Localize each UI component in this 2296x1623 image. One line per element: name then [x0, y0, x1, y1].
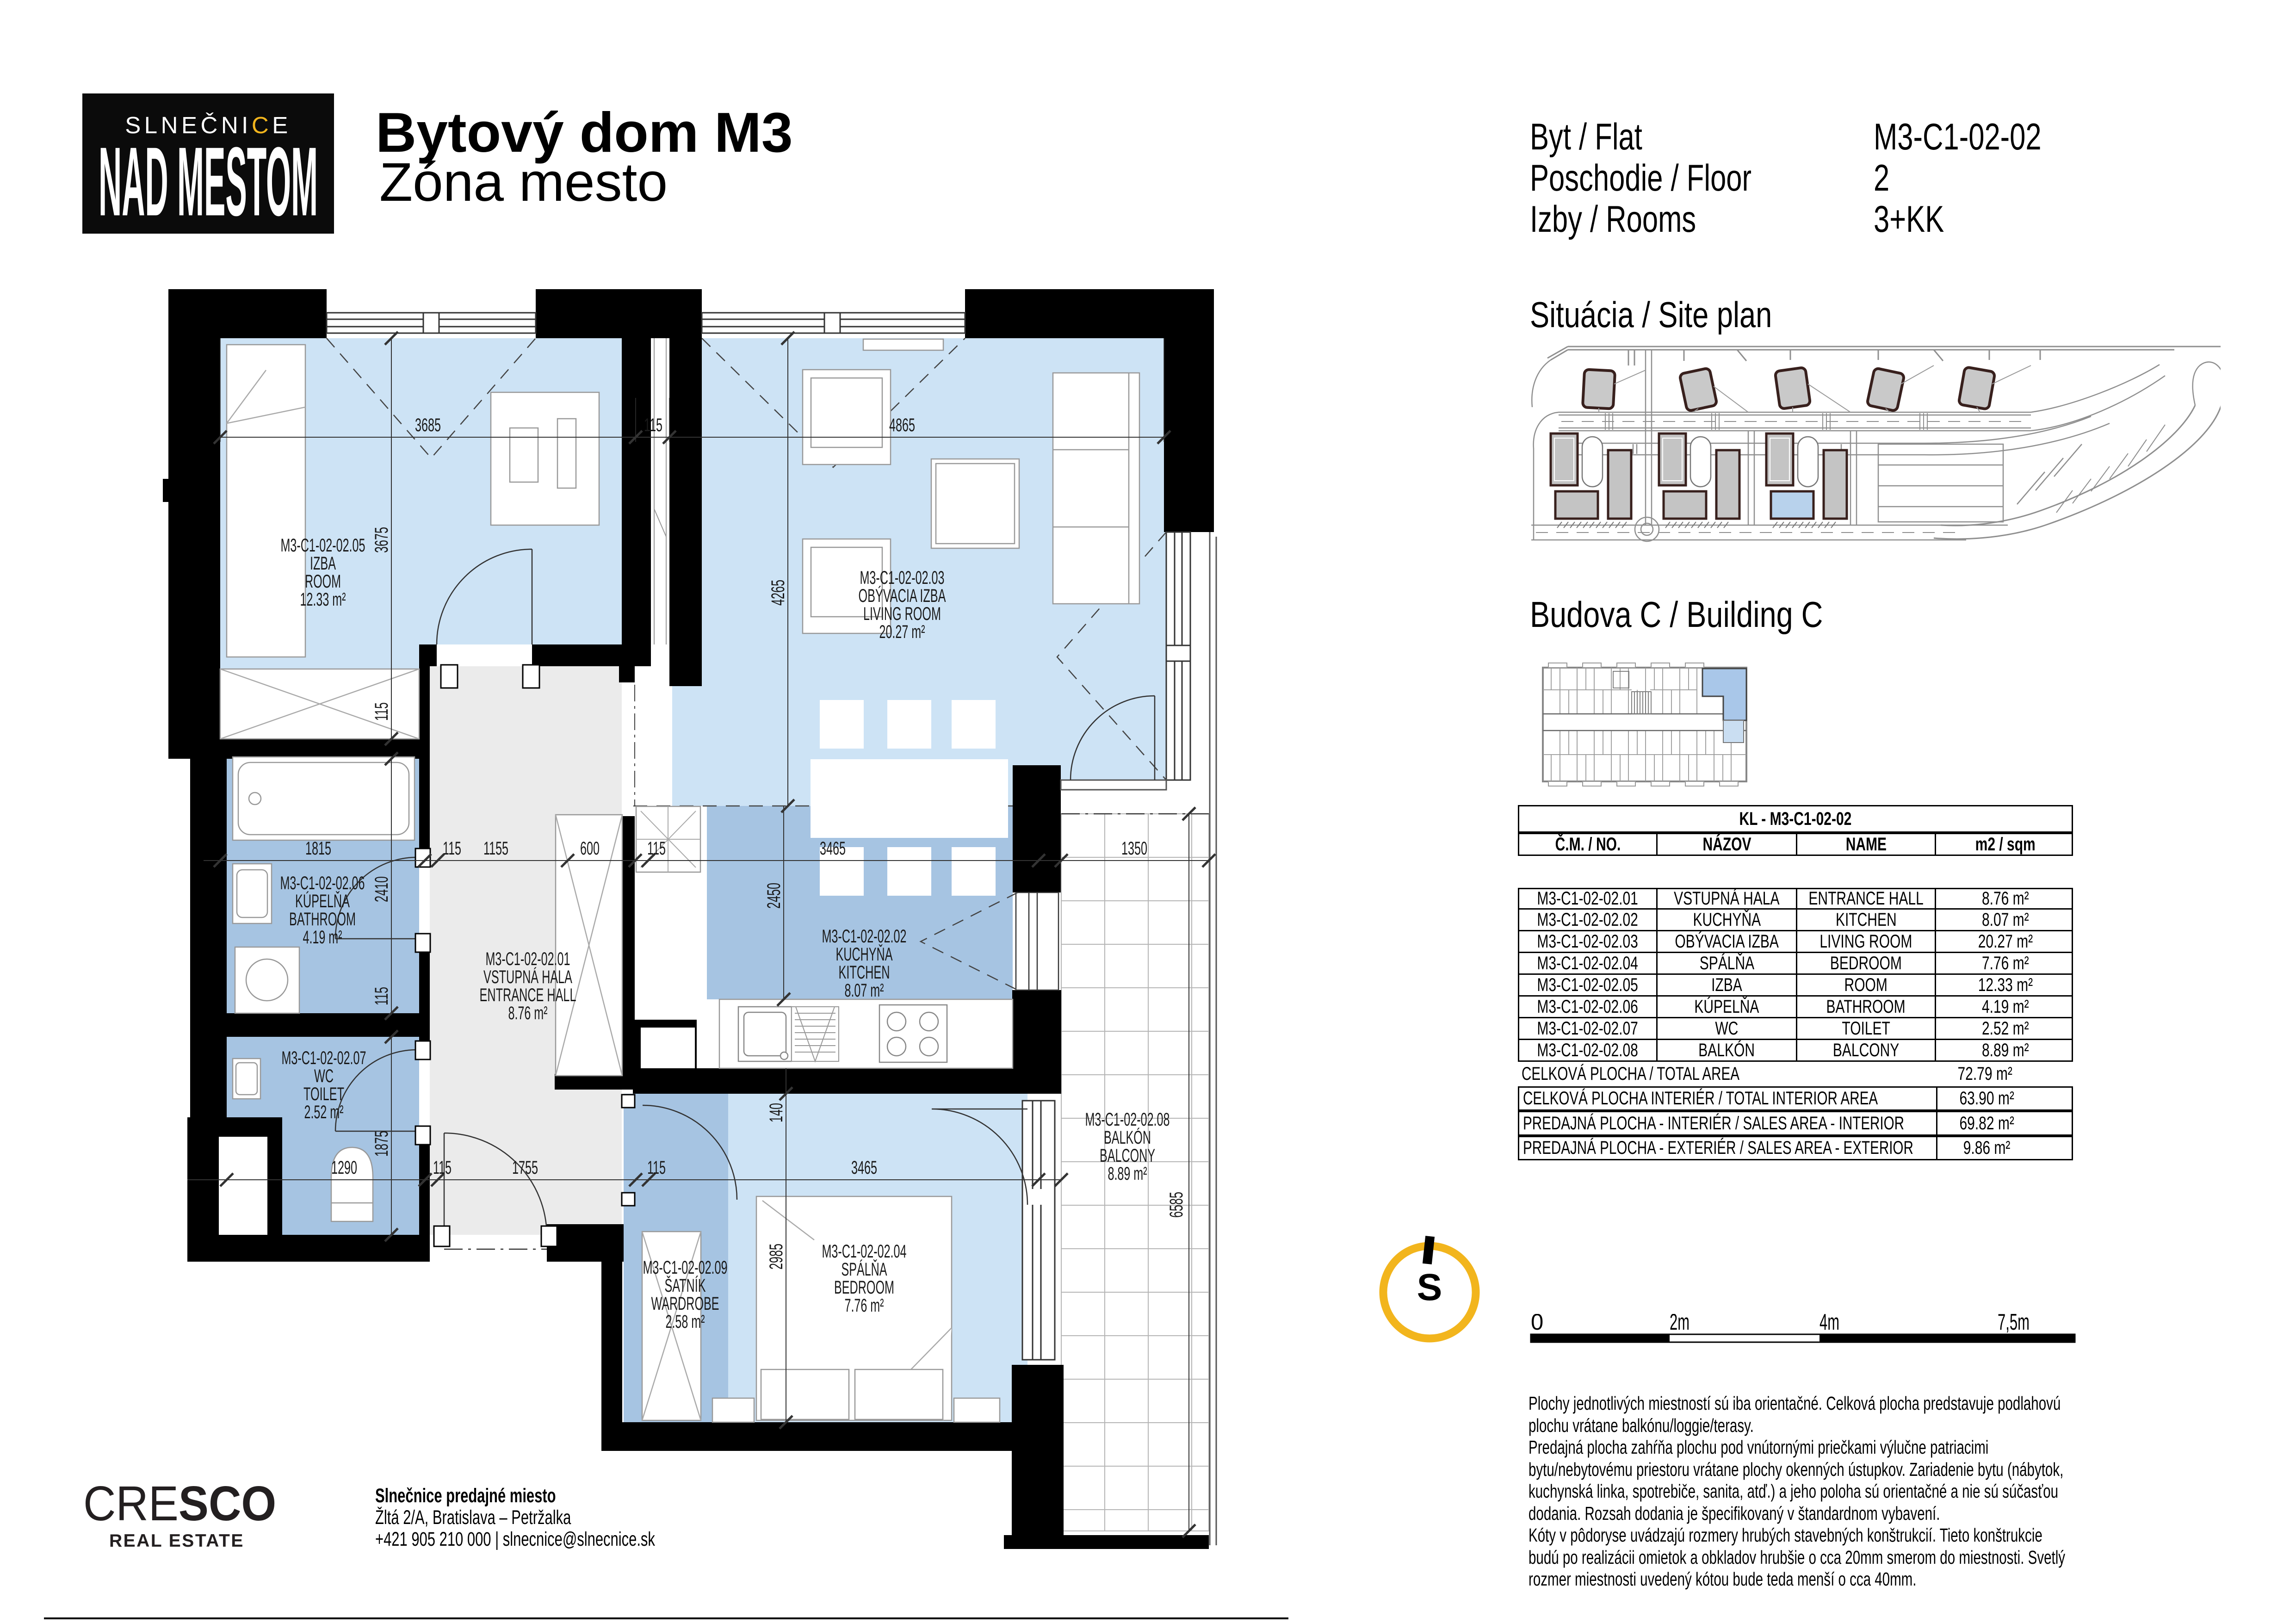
svg-text:20.27 m²: 20.27 m²	[879, 622, 925, 642]
svg-text:VSTUPNÁ HALA: VSTUPNÁ HALA	[483, 966, 572, 987]
svg-text:M3-C1-02-02.01: M3-C1-02-02.01	[486, 949, 570, 969]
svg-text:1815: 1815	[305, 838, 331, 859]
svg-text:4265: 4265	[768, 580, 788, 606]
svg-text:OBÝVACIA IZBA: OBÝVACIA IZBA	[859, 585, 946, 606]
svg-text:M3-C1-02-02.02: M3-C1-02-02.02	[822, 926, 907, 947]
svg-text:BALCONY: BALCONY	[1100, 1146, 1155, 1166]
svg-text:4m: 4m	[1819, 1314, 1839, 1335]
svg-text:8.76 m²: 8.76 m²	[508, 1003, 548, 1023]
svg-text:7.76 m²: 7.76 m²	[845, 1295, 884, 1316]
svg-text:ŠATNÍK: ŠATNÍK	[665, 1275, 706, 1296]
svg-text:KÚPELŇA: KÚPELŇA	[295, 891, 350, 911]
svg-text:BALKÓN: BALKÓN	[1104, 1127, 1151, 1148]
svg-text:ROOM: ROOM	[305, 571, 341, 592]
svg-text:M3-C1-02-02.09: M3-C1-02-02.09	[643, 1258, 728, 1278]
svg-text:SPÁLŇA: SPÁLŇA	[842, 1259, 887, 1280]
svg-text:KUCHYŇA: KUCHYŇA	[836, 944, 893, 965]
svg-text:3685: 3685	[415, 415, 441, 435]
svg-text:140: 140	[766, 1103, 786, 1122]
svg-text:WC: WC	[314, 1066, 334, 1086]
svg-text:2.58 m²: 2.58 m²	[666, 1312, 705, 1332]
svg-text:IZBA: IZBA	[310, 553, 336, 574]
svg-text:3465: 3465	[820, 838, 846, 859]
svg-text:2m: 2m	[1670, 1314, 1690, 1335]
svg-text:115: 115	[647, 838, 666, 859]
svg-text:M3-C1-02-02.03: M3-C1-02-02.03	[860, 568, 945, 588]
svg-text:115: 115	[644, 415, 662, 435]
svg-text:8.07 m²: 8.07 m²	[845, 980, 884, 1001]
svg-text:M3-C1-02-02.06: M3-C1-02-02.06	[280, 873, 365, 893]
svg-text:12.33 m²: 12.33 m²	[300, 589, 346, 610]
svg-text:BEDROOM: BEDROOM	[834, 1277, 894, 1298]
svg-text:7,5m: 7,5m	[1998, 1314, 2030, 1335]
svg-text:M3-C1-02-02.04: M3-C1-02-02.04	[822, 1241, 907, 1262]
svg-text:M3-C1-02-02.08: M3-C1-02-02.08	[1085, 1109, 1170, 1130]
svg-text:WARDROBE: WARDROBE	[651, 1294, 719, 1314]
svg-text:1875: 1875	[371, 1131, 392, 1157]
svg-text:0: 0	[1531, 1314, 1543, 1335]
svg-text:M3-C1-02-02.07: M3-C1-02-02.07	[282, 1048, 366, 1068]
svg-text:115: 115	[433, 1158, 452, 1178]
svg-text:ENTRANCE HALL: ENTRANCE HALL	[480, 985, 576, 1005]
svg-text:8.89 m²: 8.89 m²	[1108, 1164, 1147, 1184]
svg-text:1755: 1755	[512, 1158, 538, 1178]
svg-text:2985: 2985	[766, 1244, 786, 1270]
svg-text:115: 115	[443, 838, 461, 859]
svg-text:115: 115	[647, 1158, 666, 1178]
svg-text:2450: 2450	[764, 883, 784, 909]
svg-text:1290: 1290	[331, 1158, 357, 1178]
svg-text:115: 115	[371, 987, 392, 1005]
svg-text:2.52 m²: 2.52 m²	[304, 1102, 344, 1122]
svg-text:M3-C1-02-02.05: M3-C1-02-02.05	[281, 535, 365, 556]
svg-text:2410: 2410	[371, 876, 392, 902]
svg-text:4.19 m²: 4.19 m²	[303, 927, 342, 948]
svg-text:S: S	[1417, 1266, 1442, 1308]
svg-text:6585: 6585	[1166, 1192, 1187, 1218]
svg-text:4865: 4865	[889, 415, 915, 435]
svg-text:600: 600	[580, 838, 600, 859]
svg-text:BATHROOM: BATHROOM	[289, 909, 356, 929]
svg-text:3675: 3675	[371, 527, 392, 553]
svg-text:115: 115	[371, 702, 392, 721]
svg-text:KITCHEN: KITCHEN	[839, 962, 890, 983]
svg-text:LIVING ROOM: LIVING ROOM	[863, 604, 941, 624]
svg-text:1350: 1350	[1121, 838, 1147, 859]
svg-text:1155: 1155	[483, 838, 508, 859]
svg-text:TOILET: TOILET	[303, 1084, 344, 1104]
svg-text:3465: 3465	[851, 1158, 877, 1178]
